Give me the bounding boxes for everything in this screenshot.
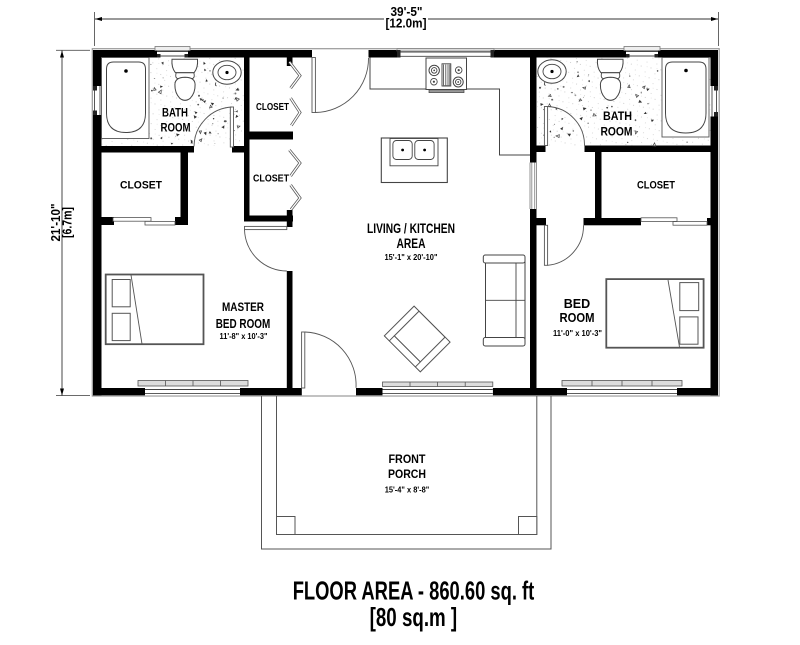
svg-text:FRONT: FRONT — [389, 452, 427, 466]
svg-text:PORCH: PORCH — [388, 467, 426, 481]
svg-text:[6.7m]: [6.7m] — [61, 207, 75, 238]
svg-text:CLOSET: CLOSET — [253, 174, 289, 185]
svg-text:BATH: BATH — [603, 109, 632, 123]
svg-text:CLOSET: CLOSET — [637, 180, 675, 192]
svg-text:ROOM: ROOM — [161, 123, 191, 135]
svg-text:15'-1" x 20'-10": 15'-1" x 20'-10" — [385, 252, 438, 262]
svg-text:11'-8" x 10'-3": 11'-8" x 10'-3" — [220, 331, 268, 341]
svg-text:BED ROOM: BED ROOM — [216, 316, 271, 331]
svg-text:ROOM: ROOM — [601, 125, 633, 139]
svg-text:BED: BED — [564, 296, 591, 311]
svg-text:15'-4" x 8'-8": 15'-4" x 8'-8" — [385, 485, 430, 495]
svg-text:CLOSET: CLOSET — [120, 180, 162, 192]
svg-text:ROOM: ROOM — [560, 310, 595, 325]
svg-text:MASTER: MASTER — [222, 302, 265, 314]
svg-text:[12.0m]: [12.0m] — [386, 17, 427, 31]
svg-text:BATH: BATH — [162, 108, 188, 120]
svg-text:LIVING / KITCHEN: LIVING / KITCHEN — [367, 221, 455, 236]
svg-text:[80 sq.m ]: [80 sq.m ] — [370, 602, 458, 632]
svg-text:AREA: AREA — [397, 236, 426, 251]
svg-text:CLOSET: CLOSET — [256, 102, 289, 113]
svg-text:11'-0" x 10'-3": 11'-0" x 10'-3" — [553, 328, 602, 338]
